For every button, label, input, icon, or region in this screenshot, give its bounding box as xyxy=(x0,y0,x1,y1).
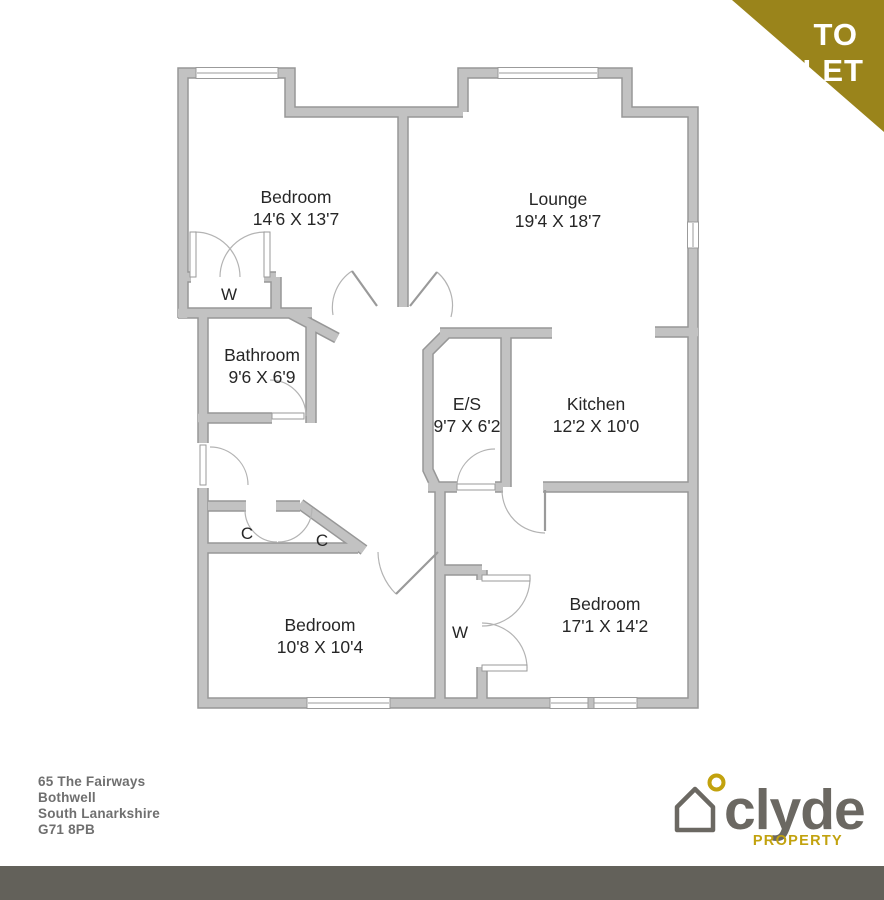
room-dims: 14'6 X 13'7 xyxy=(253,209,339,229)
room-dims: 9'7 X 6'2 xyxy=(433,416,500,436)
footer-bar xyxy=(0,866,884,900)
clyde-logo: clyde PROPERTY xyxy=(677,776,865,850)
room-name: Bedroom xyxy=(284,615,355,635)
house-icon xyxy=(677,789,713,830)
address-block: 65 The Fairways Bothwell South Lanarkshi… xyxy=(38,774,160,837)
banner-line1: TO xyxy=(814,17,859,52)
room-dims: 17'1 X 14'2 xyxy=(562,616,648,636)
banner-line2: LET xyxy=(802,53,864,88)
room-name: Bedroom xyxy=(260,187,331,207)
room-name: Lounge xyxy=(529,189,587,209)
cupboard-right-label: C xyxy=(316,531,328,550)
wardrobe-top-door-right xyxy=(264,232,270,277)
window-lounge-bay xyxy=(498,68,598,79)
floor-plan: Bedroom 14'6 X 13'7 Lounge 19'4 X 18'7 B… xyxy=(178,68,699,709)
wardrobe-bottom-door-lower xyxy=(482,665,527,671)
room-dims: 9'6 X 6'9 xyxy=(228,367,295,387)
window-bedroom-bottom-right xyxy=(550,698,637,709)
ensuite-door-leaf xyxy=(457,484,495,490)
cupboard-left-label: C xyxy=(241,524,253,543)
room-name: Kitchen xyxy=(567,394,625,414)
window-bedroom-top xyxy=(196,68,278,79)
room-label-kitchen: Kitchen 12'2 X 10'0 xyxy=(553,394,640,436)
room-label-lounge: Lounge 19'4 X 18'7 xyxy=(515,189,601,231)
room-label-ensuite: E/S 9'7 X 6'2 xyxy=(433,394,500,436)
chimney-circle-icon xyxy=(710,776,724,790)
address-line: 65 The Fairways xyxy=(38,774,145,789)
front-door-leaf xyxy=(200,445,206,485)
wardrobe-bottom-label: W xyxy=(452,623,468,642)
address-line: Bothwell xyxy=(38,790,96,805)
address-line: South Lanarkshire xyxy=(38,806,160,821)
room-label-bedroom3: Bedroom 17'1 X 14'2 xyxy=(562,594,648,636)
window-lounge-right xyxy=(688,222,699,248)
room-name: Bedroom xyxy=(569,594,640,614)
room-dims: 19'4 X 18'7 xyxy=(515,211,601,231)
room-name: Bathroom xyxy=(224,345,300,365)
room-label-bedroom1: Bedroom 14'6 X 13'7 xyxy=(253,187,339,229)
room-name: E/S xyxy=(453,394,481,414)
floorplan-page: Bedroom 14'6 X 13'7 Lounge 19'4 X 18'7 B… xyxy=(0,0,884,900)
floorplan-canvas: Bedroom 14'6 X 13'7 Lounge 19'4 X 18'7 B… xyxy=(0,0,884,900)
address-line: G71 8PB xyxy=(38,822,95,837)
room-dims: 10'8 X 10'4 xyxy=(277,637,364,657)
room-label-bedroom2: Bedroom 10'8 X 10'4 xyxy=(277,615,364,657)
wardrobe-top-door-left xyxy=(190,232,196,277)
bathroom-door-leaf xyxy=(272,413,304,419)
door-leaf-bars xyxy=(190,232,530,671)
room-label-bathroom: Bathroom 9'6 X 6'9 xyxy=(224,345,300,387)
to-let-banner: TO LET xyxy=(732,0,884,132)
logo-tagline-text: PROPERTY xyxy=(753,833,843,849)
wardrobe-top-label: W xyxy=(221,285,237,304)
wardrobe-bottom-door-upper xyxy=(482,575,530,581)
room-dims: 12'2 X 10'0 xyxy=(553,416,640,436)
window-bedroom-bottom-left xyxy=(307,698,390,709)
